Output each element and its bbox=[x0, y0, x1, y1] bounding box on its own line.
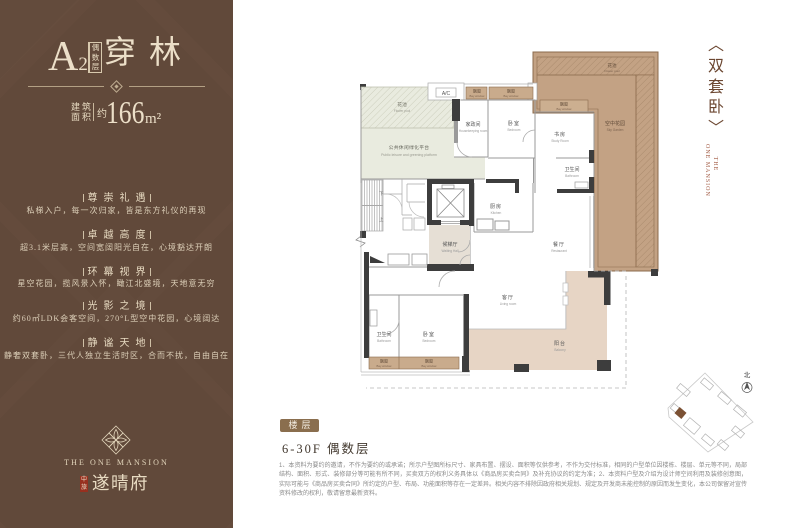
svg-text:家政间: 家政间 bbox=[465, 121, 480, 128]
svg-text:飘窗: 飘窗 bbox=[560, 101, 568, 107]
svg-text:飘窗: 飘窗 bbox=[380, 358, 388, 364]
svg-text:飘窗: 飘窗 bbox=[473, 88, 481, 94]
svg-text:Flower pool: Flower pool bbox=[604, 69, 620, 73]
svg-text:卧室: 卧室 bbox=[423, 331, 435, 338]
svg-text:Bay window: Bay window bbox=[470, 94, 486, 98]
svg-text:卫生间: 卫生间 bbox=[564, 166, 579, 173]
svg-text:花池: 花池 bbox=[608, 62, 617, 69]
svg-text:Flower pool: Flower pool bbox=[394, 109, 411, 113]
svg-text:Bay window: Bay window bbox=[377, 364, 393, 368]
svg-text:阳台: 阳台 bbox=[554, 340, 566, 347]
svg-text:Sky Garden: Sky Garden bbox=[607, 128, 624, 132]
svg-text:Waiting Hall: Waiting Hall bbox=[442, 249, 459, 253]
svg-text:花池: 花池 bbox=[397, 101, 407, 108]
svg-text:Bathroom: Bathroom bbox=[565, 174, 579, 178]
svg-text:书房: 书房 bbox=[554, 131, 566, 138]
svg-text:北: 北 bbox=[744, 371, 751, 379]
svg-text:卧室: 卧室 bbox=[508, 120, 520, 127]
svg-text:Bedroom: Bedroom bbox=[508, 128, 521, 132]
svg-text:Bay window: Bay window bbox=[557, 107, 573, 111]
svg-text:Living room: Living room bbox=[500, 302, 517, 306]
svg-text:卫生间: 卫生间 bbox=[376, 331, 391, 338]
svg-text:空中花园: 空中花园 bbox=[605, 120, 625, 127]
svg-text:厨房: 厨房 bbox=[490, 203, 502, 210]
svg-text:Housekeeping room: Housekeeping room bbox=[459, 129, 488, 133]
svg-text:餐厅: 餐厅 bbox=[553, 241, 565, 248]
svg-text:Public leisure and greening pl: Public leisure and greening platform bbox=[381, 153, 437, 157]
svg-text:Restaurant: Restaurant bbox=[551, 249, 567, 253]
svg-text:Bathroom: Bathroom bbox=[377, 339, 391, 343]
svg-text:Bay window: Bay window bbox=[504, 94, 520, 98]
svg-text:飘窗: 飘窗 bbox=[507, 88, 515, 94]
svg-text:飘窗: 飘窗 bbox=[425, 358, 433, 364]
svg-text:候梯厅: 候梯厅 bbox=[442, 241, 457, 248]
svg-text:A/C: A/C bbox=[442, 91, 451, 97]
svg-text:Kitchen: Kitchen bbox=[491, 211, 502, 215]
svg-text:Study Room: Study Room bbox=[551, 139, 569, 143]
svg-text:客厅: 客厅 bbox=[502, 294, 514, 301]
svg-text:Balcony: Balcony bbox=[554, 348, 566, 352]
svg-text:公共休闲绿化平台: 公共休闲绿化平台 bbox=[389, 144, 430, 151]
svg-text:上: 上 bbox=[379, 216, 384, 222]
svg-text:Bedroom: Bedroom bbox=[423, 339, 436, 343]
svg-text:Bay window: Bay window bbox=[422, 364, 438, 368]
